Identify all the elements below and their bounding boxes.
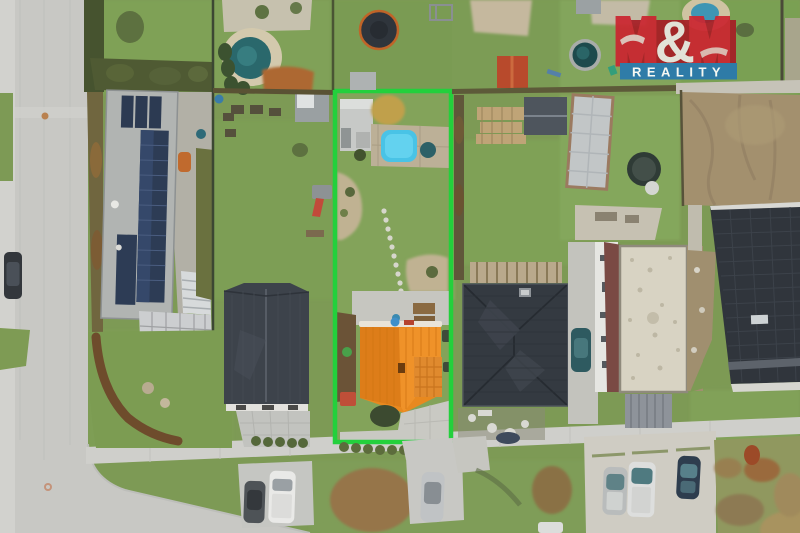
svg-text:REALITY: REALITY (632, 65, 726, 80)
